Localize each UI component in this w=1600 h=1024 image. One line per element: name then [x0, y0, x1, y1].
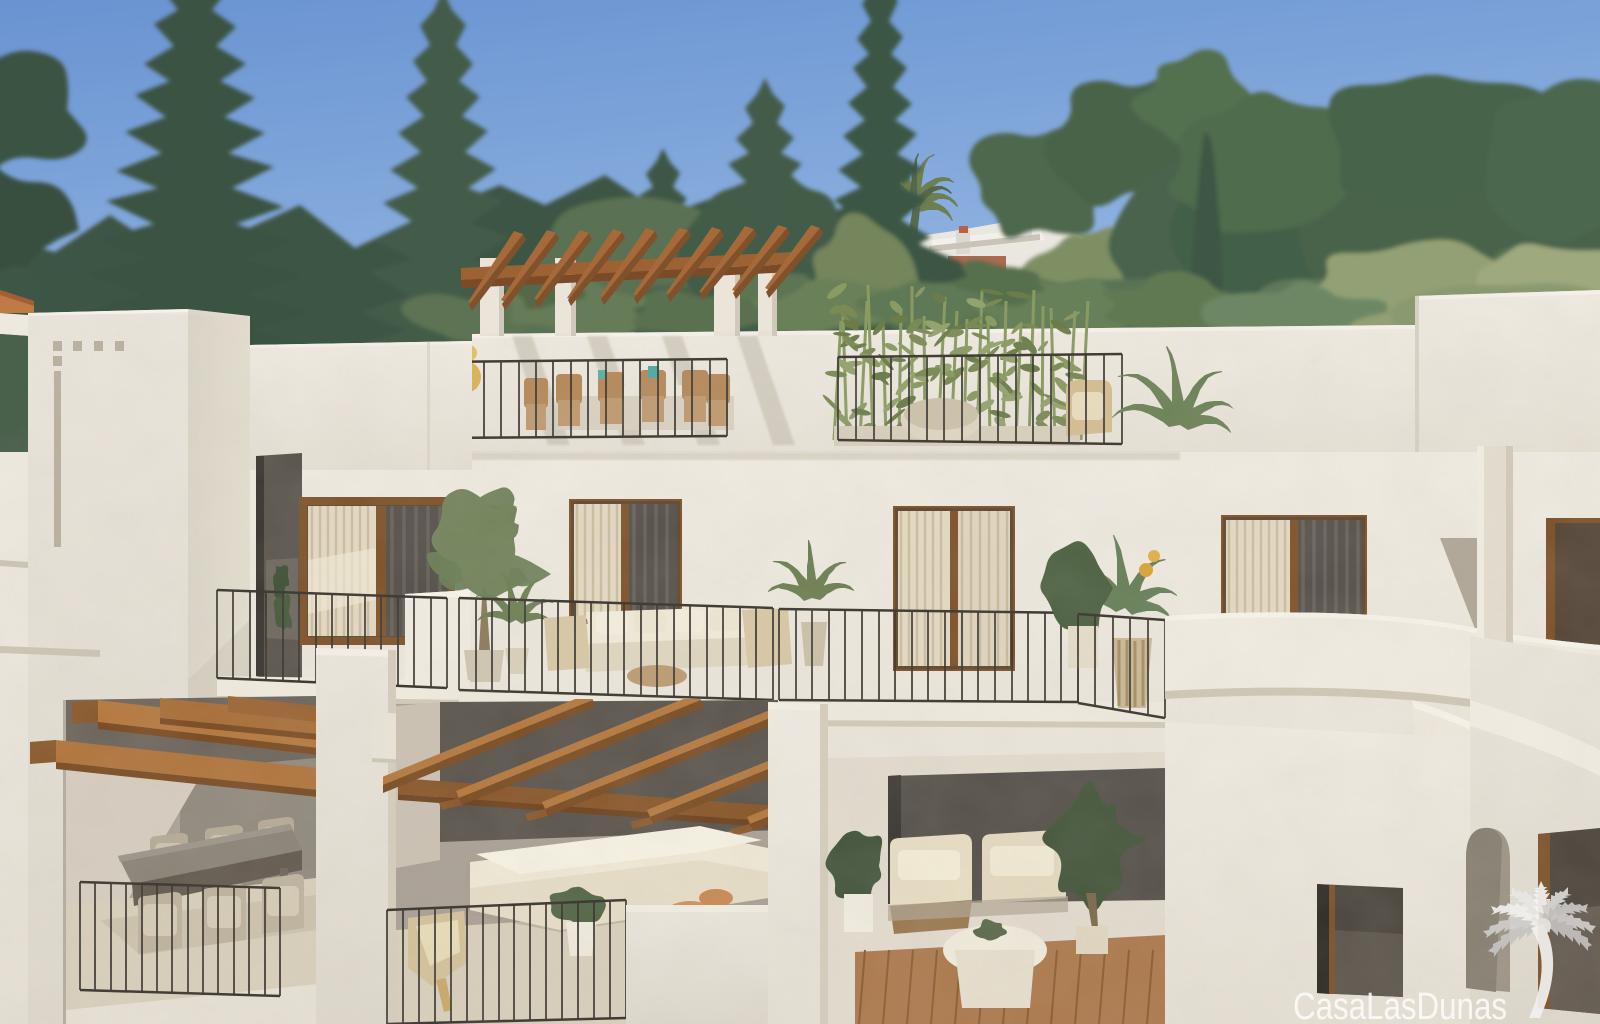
svg-text:CasaLasDunas: CasaLasDunas — [1293, 986, 1507, 1024]
